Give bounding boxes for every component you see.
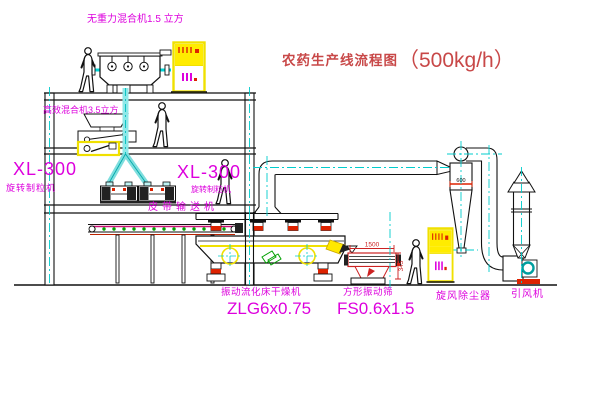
diagram-title: 农药生产线流程图 （500kg/h） (282, 44, 515, 74)
fluid-bed-dryer-drawing (196, 214, 345, 282)
cyclone-label: 旋风除尘器 (436, 292, 491, 302)
granulator-left-name-label: 旋转制粒机 (6, 184, 56, 193)
flow-diagram-canvas: 1500 345 600 农药生产线流程图 （500kg/h） 无重力混合机1.… (0, 0, 600, 403)
belt-conveyor-label: 皮带输送机 (148, 203, 218, 213)
diagram-title-capacity: （500kg/h） (398, 44, 515, 74)
screen-height-dim: 345 (398, 260, 405, 271)
cyclone-drawing (447, 141, 503, 272)
control-cabinet-ground (426, 229, 454, 282)
diagram-title-text: 农药生产线流程图 (282, 49, 398, 69)
dryer-mounts (208, 220, 334, 231)
person-top-floor (79, 48, 95, 92)
granulator-mid-name-label: 旋转制粒机 (191, 186, 231, 194)
dryer-feet (207, 263, 332, 281)
screen-length-dim: 1500 (365, 242, 380, 249)
dryer-name-label: 振动流化床干燥机 (221, 288, 301, 298)
high-eff-mixer-label: 高效混合机3.5立方 (43, 106, 119, 115)
dryer-model-label: ZLG6x0.75 (227, 300, 311, 317)
person-second-floor (153, 103, 169, 147)
zero-gravity-mixer-drawing (91, 50, 171, 93)
granulator-left-drawing (100, 182, 138, 204)
person-ground-floor (407, 240, 423, 284)
granulator-left-model-label: XL-300 (13, 160, 77, 178)
fan-label: 引风机 (511, 290, 544, 300)
vibrating-screen-drawing: 1500 345 (326, 212, 405, 288)
screen-model-label: FS0.6x1.5 (337, 300, 415, 317)
cyclone-dim-note: 600 (456, 178, 465, 184)
granulator-right-drawing (138, 182, 176, 204)
gravity-mixer-label: 无重力混合机1.5 立方 (87, 15, 184, 25)
control-cabinet-top (171, 43, 207, 93)
granulator-mid-model-label: XL-300 (177, 163, 241, 181)
screen-name-label: 方形振动筛 (343, 288, 393, 298)
exhaust-duct-drawing (253, 156, 455, 218)
